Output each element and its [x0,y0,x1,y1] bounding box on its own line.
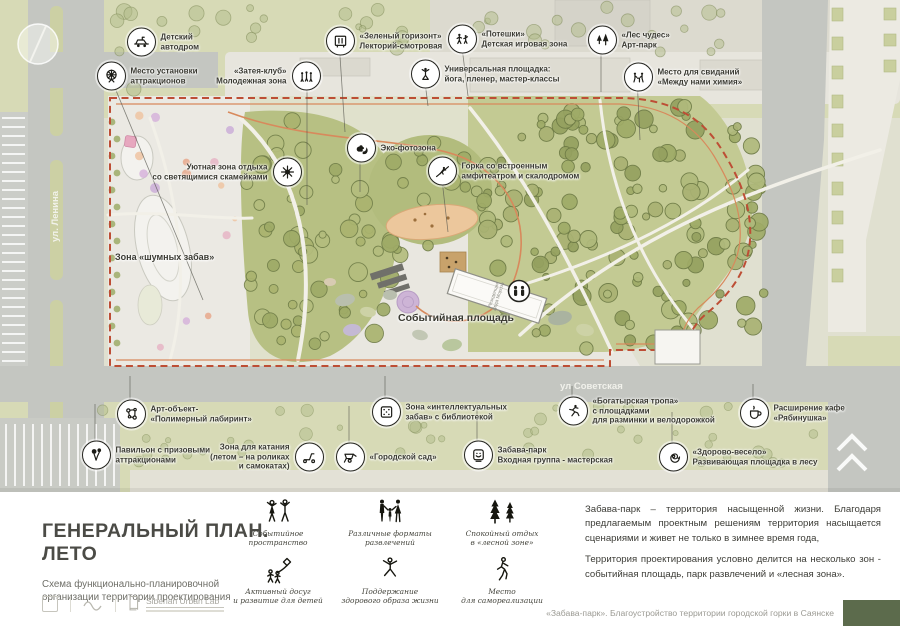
callout-label: «Затея-клуб»Молодежная зона [216,66,286,85]
callout-label: Место установкиаттракционов [131,66,198,85]
legend-item-family: Различные форматыразвлечений [334,497,446,548]
callout-label: «Зеленый горизонт»Лекторий-смотровая [360,31,443,50]
callout-label: Уютная зона отдыхасо светящимися скамейк… [152,162,267,181]
lab-name: Siberian Urban Lab [146,596,224,608]
callout-label: Зона для катания(летом – на роликахи сам… [210,443,289,472]
scooter-icon [295,443,324,472]
siberian-urban-lab-logo: Siberian Urban Lab [128,595,224,612]
signature-logo-icon [83,597,103,611]
legend-item-pines: Спокойный отдыхв «лесной зоне» [446,497,558,548]
wheelbarrow-icon [336,443,365,472]
zone-label-1: Событийная площадь [398,312,514,324]
legend-caption: Спокойный отдыхв «лесной зоне» [466,529,539,548]
sparkle-icon [273,158,302,187]
callout-label: «Богатырская тропа»с площадкамидля разми… [593,397,715,426]
callout-label: «Здорово-весело»Развивающая площадка в л… [693,447,818,466]
climber-icon [428,157,457,186]
book-icon [128,595,141,612]
callout-label: Эко-фотозона [381,143,436,153]
balloons-icon [82,441,111,470]
description-paragraph-2: Территория проектирования условно делитс… [585,553,881,582]
runner-icon [559,397,588,426]
legend-item-jumper: Поддержаниездорового образа жизни [334,555,446,606]
callout-label: Горка со встроеннымамфитеатром и скалодр… [462,161,580,180]
callout-label: Расширение кафе«Рябинушка» [774,403,845,422]
zone-label-0: Зона «шумных забав» [115,252,214,262]
principles-legend: СобытийноепространствоРазличные форматыр… [222,497,562,605]
family-icon [371,497,409,527]
callout-label: «Потешки»Детская игровая зона [482,29,568,48]
callout-label: Место для свиданий«Между нами химия» [658,67,743,86]
callout-label: Арт-объект-«Полимерный лабиринт» [151,404,252,423]
callout-label: Зона «интеллектуальныхзабав» с библиотек… [406,402,508,421]
callout-label: Универсальная площадка:йога, пленер, мас… [445,64,560,83]
callout-bogatyr-trail: «Богатырская тропа»с площадкамидля разми… [559,397,715,426]
site-plan-map: ул. Ленина ул Советская Резиденция Деда … [0,0,900,492]
callout-label: Забава-паркВходная группа - мастерская [498,445,613,464]
callout-cafe-ryabinushka: Расширение кафе«Рябинушка» [740,399,845,428]
callout-label: «Городской сад» [370,452,437,462]
legend-caption: Активный досуги развитие для детей [233,587,323,606]
callout-city-garden: «Городской сад» [336,443,437,472]
callout-label: Детскийавтодром [161,32,200,51]
yoga-icon [411,60,440,89]
partner-logo-icon [42,596,58,612]
callout-hill-amphitheatre: Горка со встроеннымамфитеатром и скалодр… [428,157,580,186]
legend-caption: Поддержаниездорового образа жизни [341,587,438,606]
kitekids-icon [259,555,297,585]
legend-item-kitekids: Активный досуги развитие для детей [222,555,334,606]
footer-accent-swatch [843,600,900,626]
logo-row: Siberian Urban Lab [42,595,224,612]
jumper-icon [371,555,409,585]
description-paragraph-1: Забава-парк – территория насыщенной жизн… [585,503,881,546]
callout-poteshki: «Потешки»Детская игровая зона [448,25,568,54]
callout-label: Павильон с призовымиаттракционами [116,445,211,464]
people-icon [292,62,321,91]
lectory-icon [326,27,355,56]
bottom-panel: ГЕНЕРАЛЬНЫЙ ПЛАН. ЛЕТО Схема функциональ… [0,492,900,637]
trees-icon [588,26,617,55]
callout-zdorovo-veselo: «Здорово-весело»Развивающая площадка в л… [659,443,818,472]
legend-item-dancers: Событийноепространство [222,497,334,548]
callout-forest-of-wonders: «Лес чудес»Арт-парк [588,26,670,55]
molecule-icon [117,400,146,429]
callout-universal-ground: Универсальная площадка:йога, пленер, мас… [411,60,560,89]
callout-zateya-club: «Затея-клуб»Молодежная зона [216,62,320,91]
ferris-icon [97,62,126,91]
legend-caption: Событийноепространство [249,529,308,548]
date-icon [624,63,653,92]
spiral-icon [659,443,688,472]
masterplan-poster: ул. Ленина ул Советская Резиденция Деда … [0,0,900,637]
legend-caption: Местодля самореализации [461,587,543,606]
project-description: Забава-парк – территория насыщенной жизн… [585,503,881,589]
callout-label: «Лес чудес»Арт-парк [622,30,670,49]
callout-eco-photozone: Эко-фотозона [347,134,436,163]
callout-riding-zone: Зона для катания(летом – на роликахи сам… [210,443,323,472]
callout-layer: Резиденция Деда Мороза ДетскийавтодромМе… [0,0,900,492]
pines-icon [483,497,521,527]
legend-item-self: Местодля самореализации [446,555,558,606]
mask-icon [464,441,493,470]
callout-prize-pavilion: Павильон с призовымиаттракционами [82,441,211,470]
squirrel-icon [347,134,376,163]
self-icon [483,555,521,585]
kids-icon [448,25,477,54]
dancers-icon [259,497,297,527]
footer-caption: «Забава-парк». Благоустройство территори… [546,608,834,618]
callout-green-horizon: «Зеленый горизонт»Лекторий-смотровая [326,27,443,56]
callout-intellectual-zone: Зона «интеллектуальныхзабав» с библиотек… [372,398,508,427]
footer: «Забава-парк». Благоустройство территори… [546,600,900,626]
callout-cozy-rest-zone: Уютная зона отдыхасо светящимися скамейк… [152,158,301,187]
cup-icon [740,399,769,428]
dice-icon [372,398,401,427]
callout-polymer-labyrinth: Арт-объект-«Полимерный лабиринт» [117,400,252,429]
building-label: Резиденция Деда Мороза [486,277,507,314]
callout-entrance-group: Забава-паркВходная группа - мастерская [464,441,613,470]
callout-attractions-spot: Место установкиаттракционов [97,62,198,91]
legend-caption: Различные форматыразвлечений [348,529,432,548]
car-icon [127,28,156,57]
callout-dating-place: Место для свиданий«Между нами химия» [624,63,743,92]
callout-auto-drome: Детскийавтодром [127,28,200,57]
